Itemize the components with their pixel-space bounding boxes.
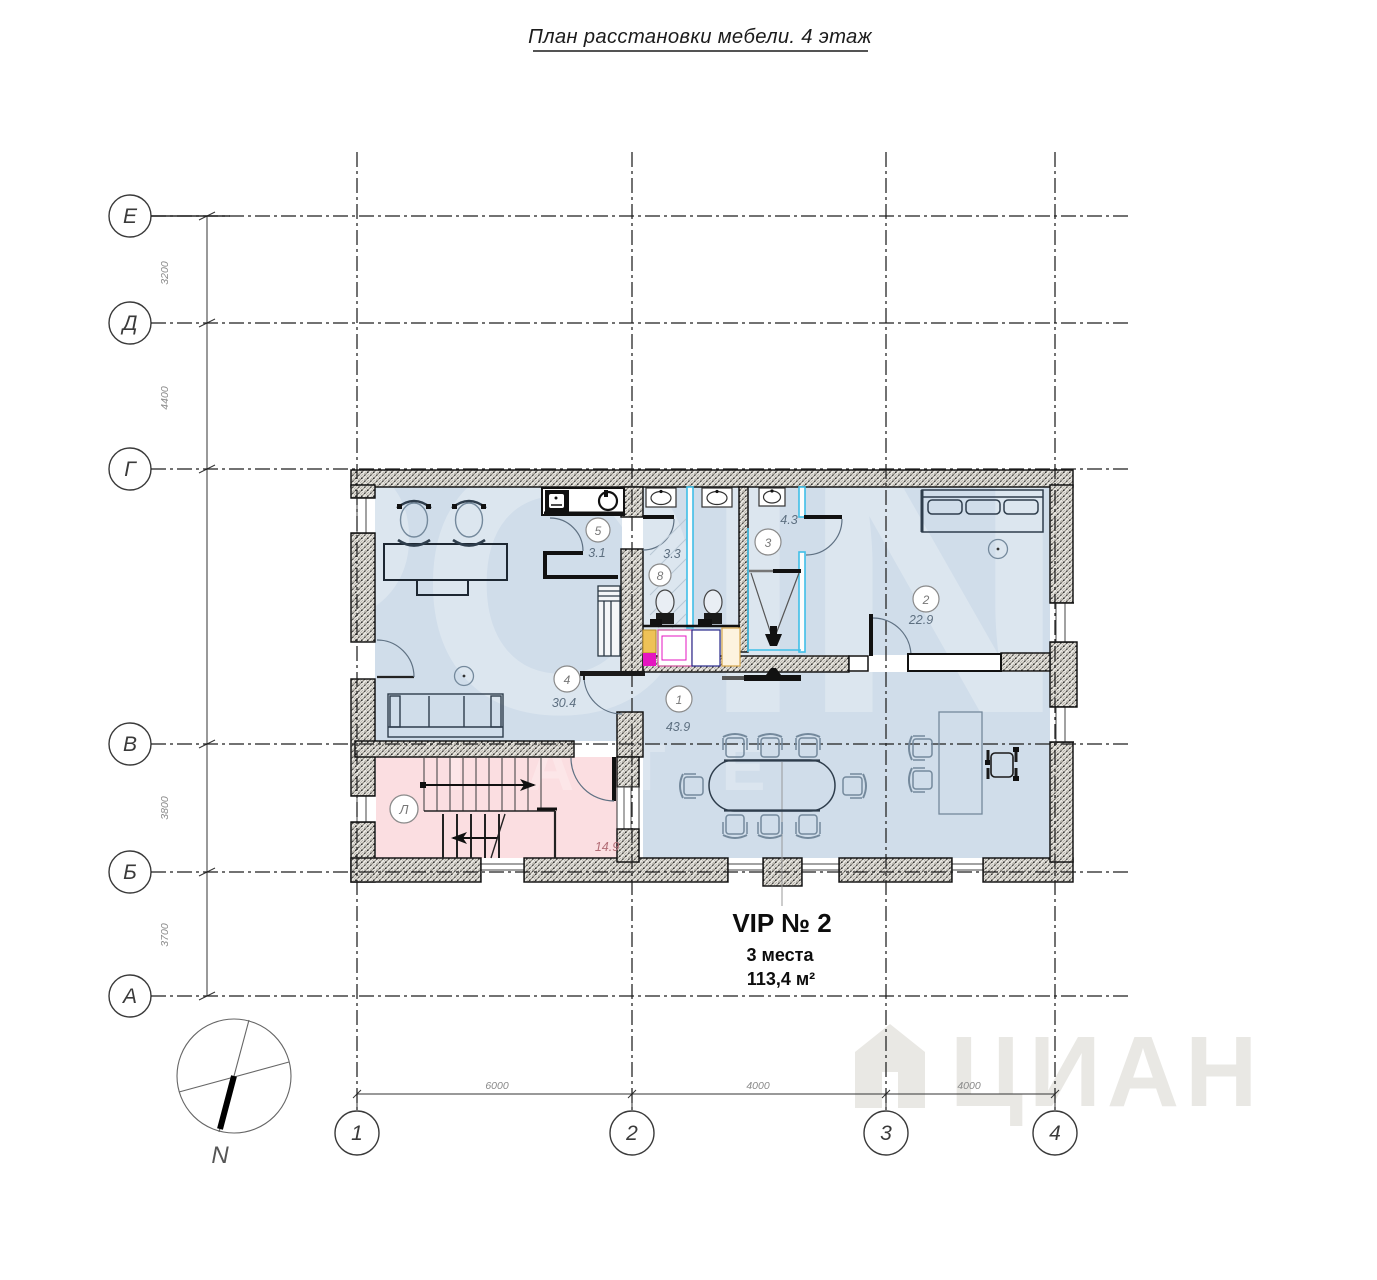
svg-text:22.9: 22.9 bbox=[908, 613, 933, 627]
svg-text:3 места: 3 места bbox=[747, 945, 815, 965]
svg-text:В: В bbox=[123, 733, 137, 756]
svg-text:План расстановки мебели. 4 эта: План расстановки мебели. 4 этаж bbox=[528, 26, 873, 48]
svg-text:Е: Е bbox=[123, 205, 138, 228]
svg-text:4400: 4400 bbox=[159, 386, 171, 410]
svg-text:43.9: 43.9 bbox=[666, 720, 690, 734]
svg-text:4000: 4000 bbox=[746, 1080, 770, 1092]
svg-text:3700: 3700 bbox=[159, 923, 171, 947]
svg-text:3: 3 bbox=[880, 1122, 892, 1145]
svg-text:4.3: 4.3 bbox=[780, 513, 797, 527]
svg-text:3800: 3800 bbox=[159, 796, 171, 820]
svg-text:6000: 6000 bbox=[485, 1080, 509, 1092]
svg-text:3.1: 3.1 bbox=[588, 546, 605, 560]
svg-text:14.9: 14.9 bbox=[595, 840, 619, 854]
svg-text:4: 4 bbox=[564, 673, 571, 687]
svg-text:ЦИАН: ЦИАН bbox=[950, 1016, 1263, 1128]
svg-text:4000: 4000 bbox=[957, 1080, 981, 1092]
svg-text:5: 5 bbox=[595, 524, 602, 538]
svg-text:3.3: 3.3 bbox=[663, 547, 680, 561]
svg-text:30.4: 30.4 bbox=[552, 696, 576, 710]
svg-text:4: 4 bbox=[1049, 1122, 1061, 1145]
svg-text:1: 1 bbox=[676, 693, 683, 707]
svg-text:Д: Д bbox=[121, 312, 138, 335]
svg-text:Л: Л bbox=[399, 802, 409, 817]
svg-text:VIP № 2: VIP № 2 bbox=[732, 908, 831, 938]
svg-text:2: 2 bbox=[922, 593, 930, 607]
svg-text:1: 1 bbox=[351, 1122, 363, 1145]
svg-text:А: А bbox=[121, 985, 137, 1008]
svg-text:N: N bbox=[211, 1142, 229, 1169]
svg-text:3200: 3200 bbox=[159, 261, 171, 285]
svg-text:2: 2 bbox=[625, 1122, 638, 1145]
svg-text:8: 8 bbox=[657, 569, 664, 583]
svg-text:3: 3 bbox=[765, 536, 772, 550]
svg-text:Г: Г bbox=[124, 458, 137, 481]
svg-text:113,4 м²: 113,4 м² bbox=[747, 969, 815, 989]
svg-text:Б: Б bbox=[123, 861, 137, 884]
